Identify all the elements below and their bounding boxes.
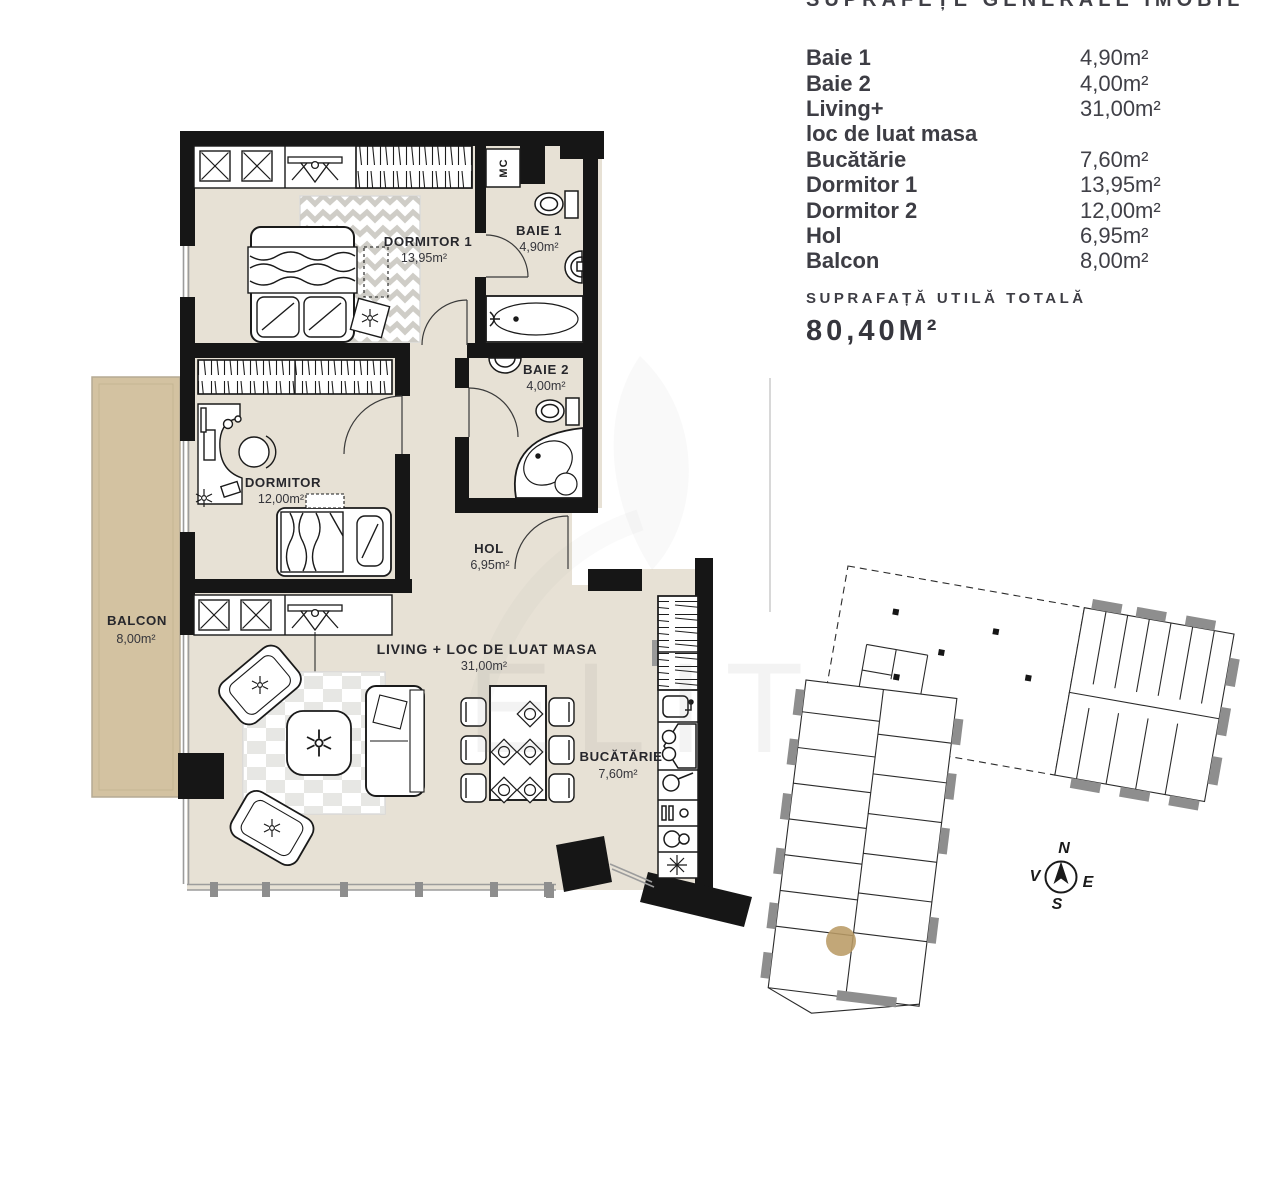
compass-east-label: E [1083, 874, 1095, 891]
freezer-icon [667, 855, 687, 875]
toilet-icon [535, 191, 578, 218]
compass-needle-icon [1054, 862, 1069, 885]
room-name: DORMITOR 1 [384, 234, 473, 249]
compass-south-label: S [1052, 896, 1063, 913]
room-name: BAIE 2 [523, 362, 569, 377]
single-bed [277, 508, 391, 576]
compass: N V E S [1030, 840, 1095, 913]
building-site-plan [757, 556, 1246, 1027]
balcony-floor [92, 377, 180, 797]
room-area: 13,95m² [401, 251, 447, 265]
room-area: 6,95m² [470, 558, 509, 572]
room-name: BAIE 1 [516, 223, 562, 238]
double-bed [248, 227, 357, 342]
room-area: 4,00m² [526, 379, 565, 393]
room-area: 8,00m² [116, 632, 155, 646]
floorplan-page: { "panel": { "title": "SUPRAFEȚE GENERAL… [0, 0, 1284, 1178]
mc-closet-label: MC [498, 158, 510, 177]
room-area: 4,90m² [519, 240, 558, 254]
unit-location-highlight [826, 926, 856, 956]
sofa [366, 686, 424, 796]
fridge-icon [664, 831, 689, 847]
room-name: BALCON [107, 613, 167, 628]
room-name: DORMITOR [245, 475, 321, 490]
toilet-icon [536, 398, 579, 425]
room-area: 12,00m² [258, 492, 304, 506]
compass-west-label: V [1030, 868, 1042, 885]
room-name: HOL [474, 541, 504, 556]
bathtub-icon [486, 296, 583, 342]
compass-north-label: N [1058, 840, 1070, 857]
plan-canvas: DORMITOR 1 13,95m² BAIE 1 4,90m² BAIE 2 … [0, 0, 1284, 1178]
coffee-table [287, 711, 351, 775]
